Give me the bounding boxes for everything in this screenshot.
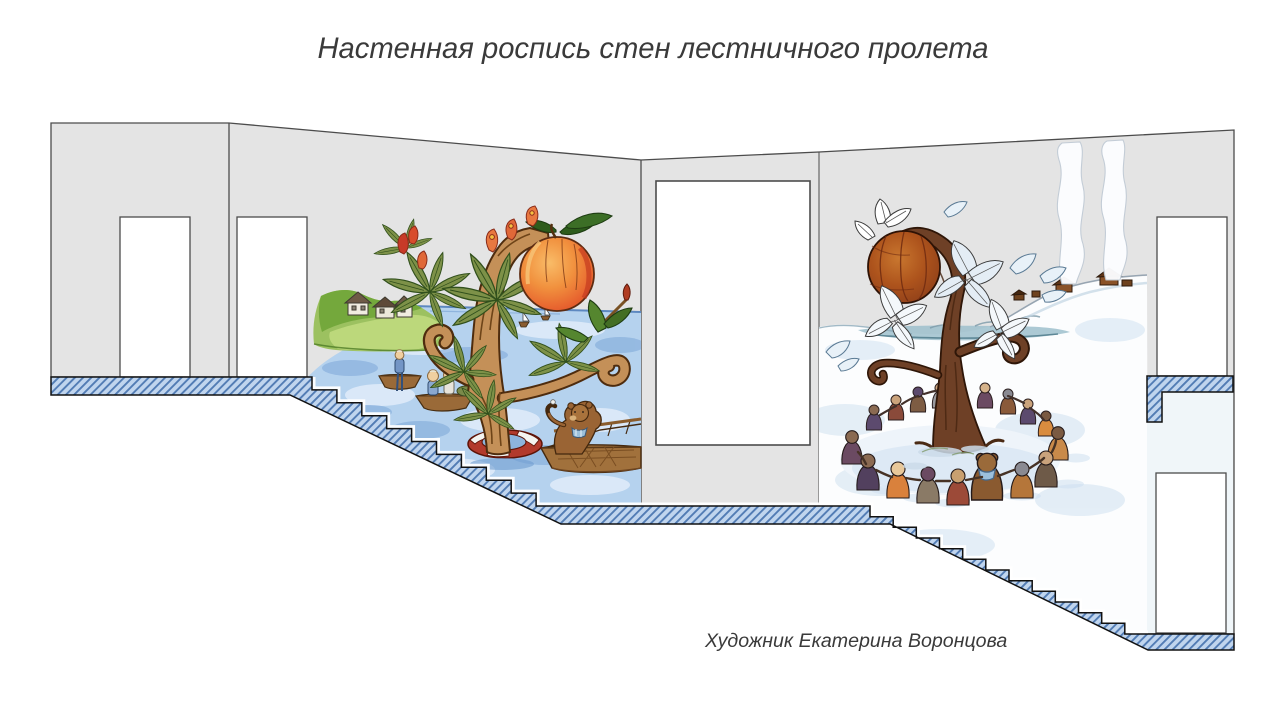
svg-text:Настенная роспись стен лестнич: Настенная роспись стен лестничного проле… bbox=[317, 33, 988, 65]
svg-text:Художник Екатерина Воронцова: Художник Екатерина Воронцова bbox=[704, 630, 1007, 652]
